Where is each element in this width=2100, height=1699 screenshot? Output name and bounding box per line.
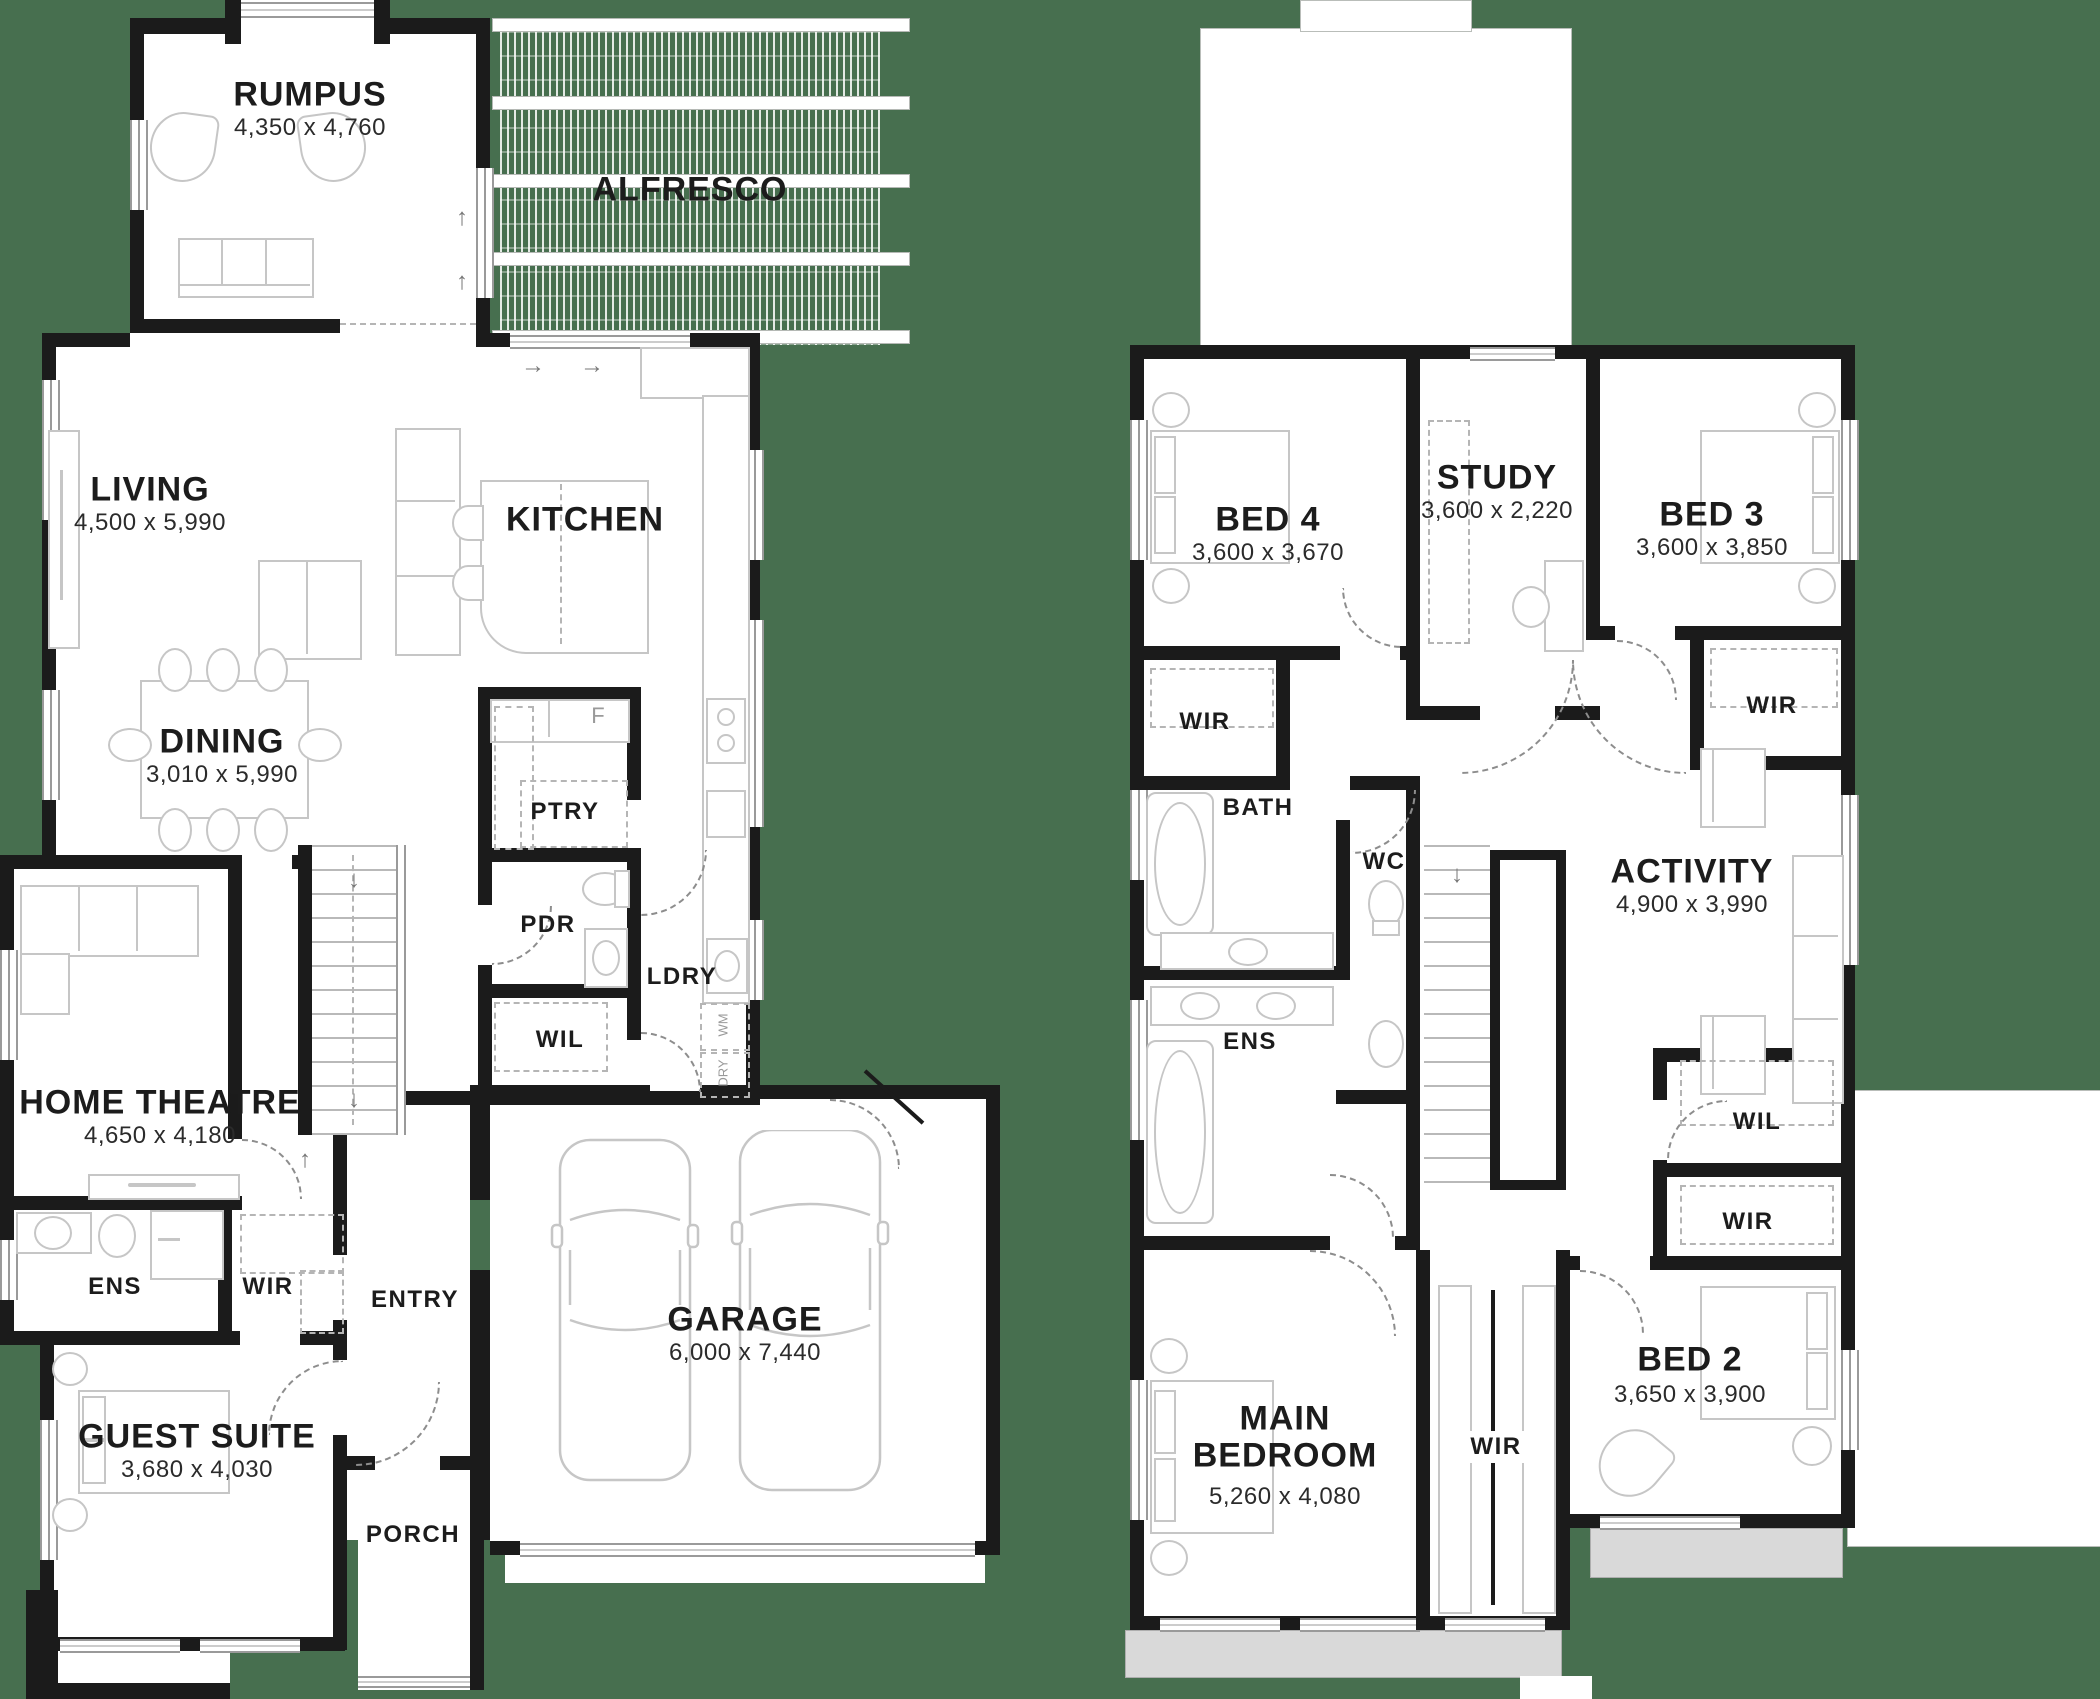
room-label-porch: PORCH	[366, 1521, 460, 1549]
room-label-bath: BATH	[1223, 794, 1294, 822]
room-label-bed3: BED 3	[1659, 496, 1764, 535]
window	[1470, 347, 1555, 361]
wall	[470, 1540, 484, 1690]
room-dims-rumpus: 4,350 x 4,760	[234, 114, 386, 142]
room-label-wir-bed3: WIR	[1746, 692, 1797, 720]
side-table	[1150, 1540, 1188, 1576]
room-dims-home-theatre: 4,650 x 4,180	[84, 1122, 236, 1150]
floor-plan-canvas: ↓ ↓ ↑ ↑ → → ↑	[0, 0, 2100, 1699]
chair	[254, 808, 288, 852]
room-label-ens-first: ENS	[1223, 1028, 1277, 1056]
side-table	[1150, 1338, 1188, 1374]
room-label-dining: DINING	[160, 723, 285, 762]
wall	[1650, 1256, 1841, 1270]
window	[130, 120, 148, 210]
shower-head	[158, 1238, 180, 1241]
stool	[452, 505, 484, 541]
wall	[986, 1085, 1000, 1555]
wall	[0, 855, 242, 869]
room-label-ens: ENS	[88, 1273, 142, 1301]
wall	[1675, 626, 1855, 640]
room-dims-bed3: 3,600 x 3,850	[1636, 534, 1788, 562]
pillow	[1806, 1352, 1828, 1410]
robe-shelves	[300, 1270, 344, 1334]
sofa-line	[397, 575, 455, 577]
sofa-line	[1794, 935, 1838, 937]
pergola-beam	[492, 18, 910, 32]
room-label-wc: WC	[1363, 848, 1406, 876]
stair-arrow-icon: ↓	[348, 1086, 360, 1114]
wall	[975, 1541, 1000, 1555]
sideboard-line	[306, 562, 308, 654]
side-table	[1152, 392, 1190, 428]
wall	[1400, 646, 1420, 660]
window	[1445, 1618, 1545, 1632]
media-unit	[88, 1174, 240, 1200]
chair-line	[1712, 750, 1714, 822]
basin	[592, 940, 620, 976]
room-label-kitchen: KITCHEN	[506, 501, 664, 540]
chair	[108, 728, 152, 762]
veranda-roof	[1125, 1630, 1562, 1678]
theatre-sofa	[20, 885, 199, 957]
basin	[1180, 992, 1220, 1020]
study-shelves	[1428, 420, 1470, 644]
room-label-living: LIVING	[90, 471, 209, 510]
wall	[1130, 776, 1290, 790]
room-label-study: STUDY	[1437, 459, 1557, 498]
room-label-guest-suite: GUEST SUITE	[78, 1418, 316, 1457]
roof-outline-top	[1200, 28, 1572, 347]
window	[1841, 420, 1859, 560]
side-table	[1152, 568, 1190, 604]
pillow	[1154, 496, 1176, 554]
wall	[476, 298, 490, 347]
up-arrow-icon: ↑	[456, 268, 468, 296]
wall	[1556, 1250, 1570, 1630]
slide-arrow-icon: →	[580, 352, 604, 380]
window	[40, 1420, 58, 1560]
bay-window	[241, 2, 374, 18]
wall	[490, 333, 510, 347]
porch-edge	[358, 1676, 470, 1688]
wall	[1336, 1090, 1420, 1104]
tv	[60, 470, 63, 600]
veranda-roof	[1590, 1528, 1843, 1578]
sink-bowl	[717, 708, 735, 726]
room-dims-dining: 3,010 x 5,990	[146, 761, 298, 789]
room-label-laundry: LDRY	[647, 963, 717, 991]
wall	[1653, 1048, 1667, 1100]
tub-inner	[1154, 1050, 1206, 1214]
garage-door	[520, 1543, 975, 1557]
wall	[0, 1331, 240, 1345]
sofa-line	[221, 240, 223, 286]
wall	[470, 1270, 490, 1540]
pillow	[1806, 1292, 1828, 1350]
sofa-line	[78, 887, 80, 951]
roof-outline-right	[1847, 1090, 2100, 1547]
room-label-bed4: BED 4	[1215, 501, 1320, 540]
sofa-line	[397, 500, 455, 502]
window	[1160, 1618, 1280, 1632]
pillow	[1812, 436, 1834, 494]
wall	[1406, 790, 1420, 1250]
room-dims-bed2: 3,650 x 3,900	[1614, 1381, 1766, 1409]
room-label-alfresco: ALFRESCO	[593, 171, 788, 210]
guest-veranda	[54, 1651, 230, 1684]
fridge-label: F	[591, 703, 604, 729]
basin	[1256, 992, 1296, 1020]
staircase	[1424, 845, 1490, 1195]
garage-apron	[505, 1555, 985, 1583]
wall	[1395, 1236, 1420, 1250]
open-header-dashed	[340, 323, 476, 325]
chair	[206, 648, 240, 692]
wall	[1586, 345, 1600, 640]
up-arrow-icon: ↑	[299, 1146, 311, 1174]
room-label-wir-bed4: WIR	[1179, 708, 1230, 736]
basin	[1228, 938, 1268, 966]
room-dims-garage: 6,000 x 7,440	[669, 1339, 821, 1367]
up-arrow-icon: ↑	[456, 204, 468, 232]
tv-unit	[48, 430, 80, 649]
wall	[1350, 776, 1420, 790]
room-dims-living: 4,500 x 5,990	[74, 509, 226, 537]
wall	[130, 319, 340, 333]
cabinet-line	[548, 701, 550, 737]
sofa	[395, 428, 461, 656]
wall	[1600, 626, 1615, 640]
cooktop	[706, 790, 746, 838]
chair	[254, 648, 288, 692]
pergola-beam	[492, 252, 910, 266]
sofa-line	[1794, 1018, 1838, 1020]
side-table	[1798, 392, 1836, 428]
dryer-label: DRY	[716, 1059, 731, 1086]
wall	[382, 18, 490, 34]
window	[1841, 1350, 1859, 1450]
pillow	[1154, 436, 1176, 494]
wall	[1130, 1236, 1330, 1250]
desk	[1544, 560, 1584, 652]
chair	[1700, 748, 1766, 828]
wall	[1336, 820, 1350, 980]
window	[60, 1639, 180, 1653]
room-dims-activity: 4,900 x 3,990	[1616, 891, 1768, 919]
window	[200, 1639, 300, 1653]
stair-arrow-icon: ↓	[1451, 861, 1463, 889]
stair-arrow-icon: ↓	[348, 866, 360, 894]
stair-balustrade	[396, 845, 406, 1135]
wall	[478, 848, 641, 862]
room-label-rumpus: RUMPUS	[233, 76, 386, 115]
stool	[452, 565, 484, 601]
chair	[158, 808, 192, 852]
sofa-line	[178, 284, 310, 286]
tub-bowl	[714, 950, 740, 982]
chair	[298, 728, 342, 762]
room-label-pantry: PTRY	[530, 798, 599, 826]
tub-inner	[1154, 802, 1206, 926]
corner-pier	[26, 1683, 230, 1699]
room-label-entry: ENTRY	[371, 1286, 459, 1314]
wall	[1406, 345, 1420, 720]
room-label-garage: GARAGE	[667, 1301, 822, 1340]
side-table	[52, 1498, 88, 1532]
room-label-powder: PDR	[520, 911, 575, 939]
wall	[1276, 660, 1290, 790]
sideboard	[258, 560, 362, 660]
corner-pier	[26, 1590, 58, 1698]
window	[1600, 1516, 1740, 1530]
washer-label: WM	[716, 1013, 731, 1036]
room-label-wir-main: WIR	[1466, 1431, 1525, 1463]
room-label-wir: WIR	[242, 1273, 293, 1301]
wardrobe-rail	[1522, 1285, 1556, 1614]
side-table	[52, 1352, 88, 1386]
toilet	[98, 1214, 136, 1258]
basin	[34, 1216, 72, 1250]
wall	[130, 18, 232, 34]
room-label-activity: ACTIVITY	[1611, 853, 1774, 892]
sink-bowl	[717, 734, 735, 752]
toilet-tank	[1372, 920, 1400, 936]
toilet-tank	[614, 870, 630, 908]
room-dims-bed4: 3,600 x 3,670	[1192, 539, 1344, 567]
robe-shelves	[240, 1214, 344, 1274]
porch-floor	[358, 1456, 470, 1690]
side-table	[1798, 568, 1836, 604]
tv-line	[128, 1183, 196, 1187]
window	[42, 690, 60, 800]
room-dims-guest-suite: 3,680 x 4,030	[121, 1456, 273, 1484]
sofa	[178, 238, 314, 298]
glass-door	[476, 168, 494, 298]
toilet	[1368, 1020, 1404, 1068]
sofa-line	[136, 887, 138, 951]
room-dims-study: 3,600 x 2,220	[1421, 497, 1573, 525]
chair	[206, 808, 240, 852]
room-label-main-bedroom: MAIN BEDROOM	[1145, 1401, 1425, 1476]
wall	[333, 1345, 347, 1360]
pergola-beam	[492, 96, 910, 110]
wall	[440, 1456, 470, 1470]
pillow	[1812, 496, 1834, 554]
kitchen-bench-top	[640, 347, 750, 399]
room-label-wil-first: WIL	[1733, 1108, 1781, 1136]
wall	[1130, 646, 1340, 660]
chair	[158, 648, 192, 692]
wall	[490, 1541, 520, 1555]
shower	[150, 1210, 224, 1280]
theatre-chaise	[20, 953, 70, 1015]
wall	[476, 18, 490, 168]
side-table	[1792, 1426, 1832, 1466]
window	[1130, 420, 1148, 560]
room-label-wir-right: WIR	[1722, 1208, 1773, 1236]
vanity	[1150, 986, 1334, 1026]
room-dims-main-bedroom: 5,260 x 4,080	[1209, 1483, 1361, 1511]
sofa-line	[265, 240, 267, 286]
window	[1300, 1618, 1420, 1632]
room-label-linen: WIL	[536, 1026, 584, 1054]
wall	[1653, 1163, 1841, 1177]
slide-arrow-icon: →	[521, 352, 545, 380]
stair-void	[1490, 850, 1566, 1190]
stair-centerline	[352, 855, 354, 1125]
portico-tab	[1520, 1676, 1592, 1699]
wall	[1570, 1256, 1580, 1270]
window	[0, 950, 18, 1060]
room-label-home-theatre: HOME THEATRE	[19, 1084, 300, 1123]
roof-outline-top-tab	[1300, 0, 1472, 32]
room-label-bed2: BED 2	[1637, 1341, 1742, 1380]
desk-chair	[1512, 586, 1550, 628]
